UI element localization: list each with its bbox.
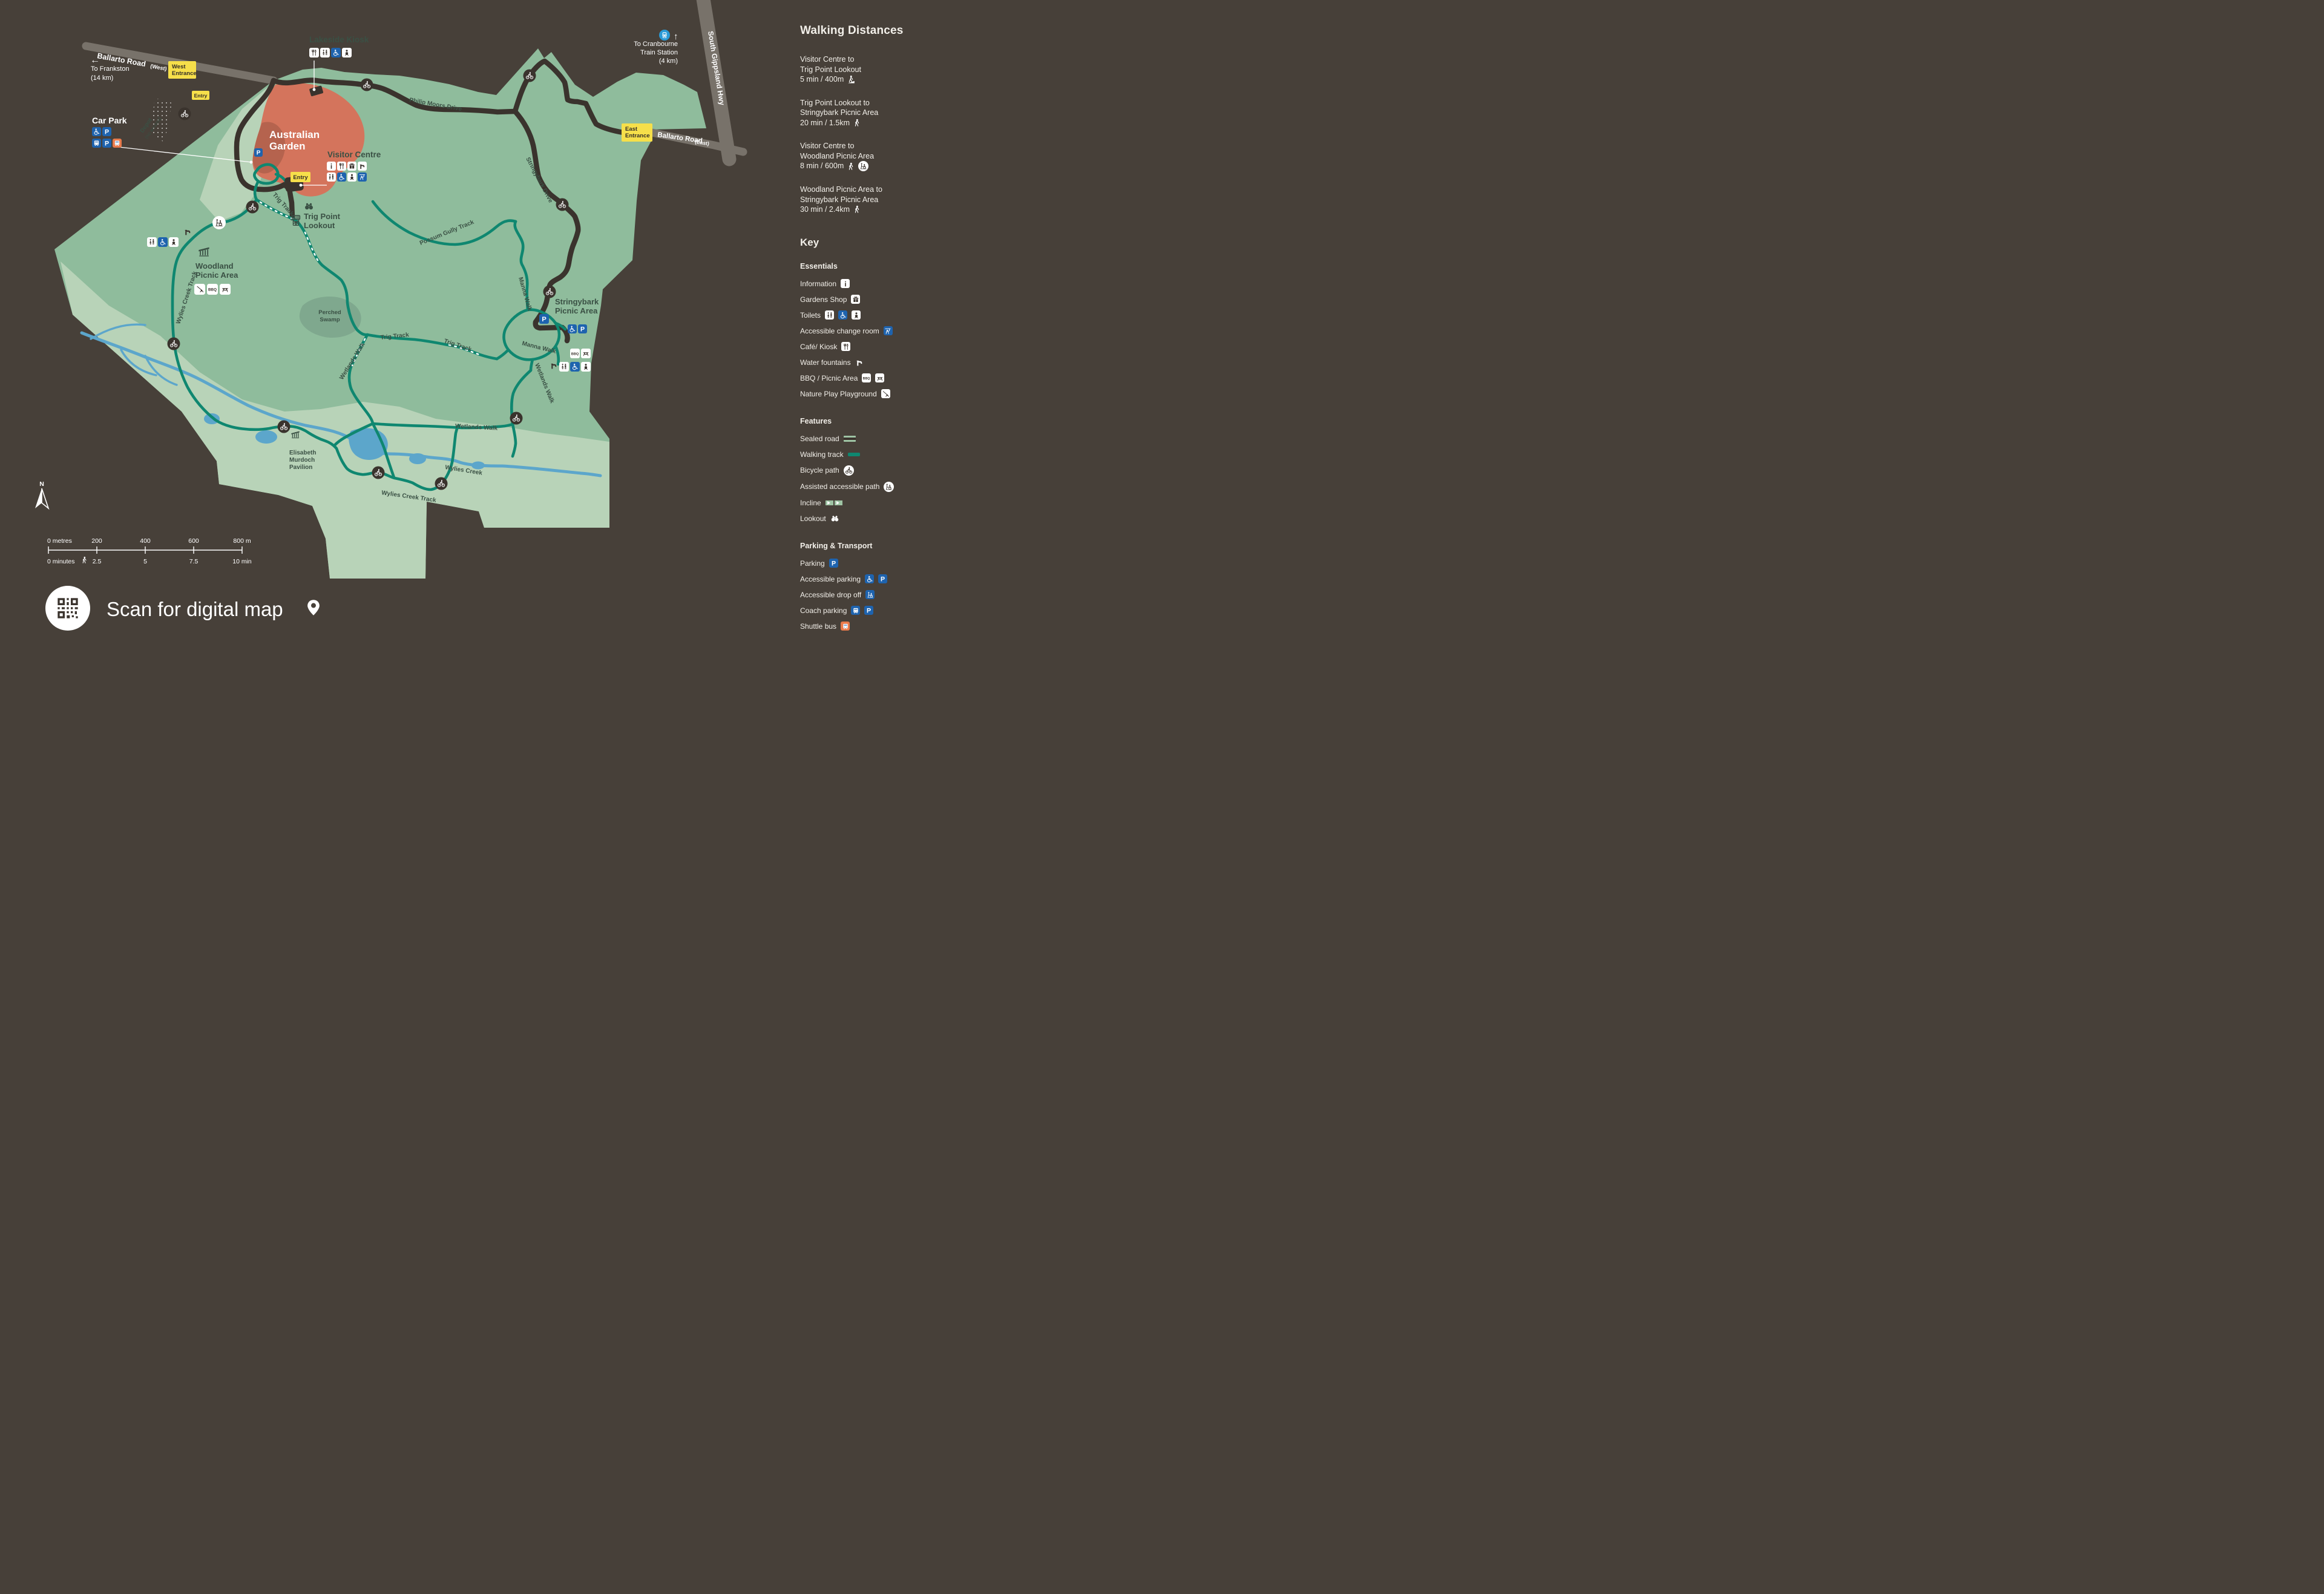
scale-minutes-25: 2.5 bbox=[93, 558, 102, 565]
key-label: Parking bbox=[800, 559, 825, 568]
key-label: Bicycle path bbox=[800, 466, 839, 474]
wd-detail: 30 min / 2.4km bbox=[800, 205, 850, 215]
key-label: Toilets bbox=[800, 311, 821, 320]
to-frankston-label-1: To Frankston bbox=[91, 65, 130, 73]
connector-dot-1 bbox=[250, 161, 253, 164]
key-item-information: Information bbox=[800, 279, 921, 289]
coach-icon bbox=[94, 140, 99, 146]
key-item-accessible-change-room: Accessible change room bbox=[800, 326, 921, 336]
park-map-page: BBQ P bbox=[0, 0, 930, 638]
walker-incline-icon bbox=[847, 75, 856, 84]
information-icon bbox=[331, 163, 332, 169]
assisted-path-marker bbox=[212, 216, 226, 229]
key-label: Accessible change room bbox=[800, 327, 879, 335]
key-item-incline: Incline bbox=[800, 498, 921, 508]
wd-route-line: Stringybark Picnic Area bbox=[800, 108, 921, 118]
key-label: Assisted accessible path bbox=[800, 482, 879, 491]
walking-distance-item: Woodland Picnic Area to Stringybark Picn… bbox=[800, 185, 921, 215]
wd-route-line: Visitor Centre to bbox=[800, 54, 921, 65]
key-item-gardens-shop: Gardens Shop bbox=[800, 295, 921, 304]
scale-bar: 0 metres 200 400 600 800 m 0 minutes 2.5… bbox=[47, 537, 252, 565]
scale-bar-line bbox=[48, 546, 242, 554]
water-fountain-icon bbox=[855, 358, 864, 367]
walking-distance-item: Visitor Centre to Trig Point Lookout 5 m… bbox=[800, 54, 921, 85]
key-item-lookout: Lookout bbox=[800, 514, 921, 523]
scale-metres-600: 600 bbox=[188, 537, 199, 545]
key-item-coach-parking: Coach parking bbox=[800, 606, 921, 615]
wd-route-line: Woodland Picnic Area bbox=[800, 151, 921, 162]
compass-needle-left bbox=[35, 488, 42, 508]
key-item-shuttle-bus: Shuttle bus bbox=[800, 622, 921, 631]
australian-garden-label-1: Australian bbox=[269, 129, 320, 140]
to-cranbourne-label-1: To Cranbourne bbox=[634, 41, 678, 48]
key-section-features: Features Sealed road Walking track Bicyc… bbox=[800, 417, 921, 523]
scale-minutes-75: 7.5 bbox=[189, 558, 199, 565]
baby-change-icon bbox=[852, 310, 861, 320]
key-label: Sealed road bbox=[800, 435, 839, 443]
stringybark-picnic-label-2: Picnic Area bbox=[555, 306, 598, 315]
scale-minutes-10: 10 min bbox=[232, 558, 252, 565]
key-label: Nature Play Playground bbox=[800, 390, 877, 398]
key-label: Information bbox=[800, 280, 836, 288]
scan-footer: Scan for digital map bbox=[45, 586, 320, 631]
accessible-icon bbox=[865, 574, 874, 583]
wd-route-line: Stringybark Picnic Area bbox=[800, 195, 921, 205]
wd-route-line: Woodland Picnic Area to bbox=[800, 185, 921, 195]
key-item-cafe-kiosk: Café/ Kiosk bbox=[800, 342, 921, 352]
key-label: Gardens Shop bbox=[800, 295, 847, 304]
shuttle-bus-icon bbox=[115, 140, 119, 146]
toilets-icon bbox=[825, 310, 834, 320]
shuttle-bus-icon bbox=[841, 622, 850, 631]
scale-minutes-5: 5 bbox=[143, 558, 147, 565]
walking-track-swatch bbox=[848, 453, 860, 456]
parking-icon bbox=[580, 326, 585, 333]
wd-route-line: Trig Point Lookout to bbox=[800, 98, 921, 108]
key-label: BBQ / Picnic Area bbox=[800, 374, 858, 382]
key-item-water-fountains: Water fountains bbox=[800, 358, 921, 367]
key-label: Walking track bbox=[800, 450, 844, 459]
trig-point-label-1: Trig Point bbox=[304, 212, 341, 221]
key-item-nature-play: Nature Play Playground bbox=[800, 389, 921, 399]
key-item-bicycle-path: Bicycle path bbox=[800, 465, 921, 476]
key-item-accessible-parking: Accessible parking bbox=[800, 574, 921, 584]
key-item-walking-track: Walking track bbox=[800, 450, 921, 459]
to-frankston-label-2: (14 km) bbox=[91, 74, 113, 82]
murdoch-pavilion-label-1: Elisabeth bbox=[289, 450, 316, 456]
parking-icon bbox=[878, 574, 887, 583]
walking-distance-item: Visitor Centre to Woodland Picnic Area 8… bbox=[800, 141, 921, 171]
parking-icon bbox=[105, 128, 109, 136]
bbq-icon bbox=[862, 373, 871, 382]
car-park-icons bbox=[92, 127, 122, 148]
bicycle-path-icon bbox=[844, 465, 854, 476]
picnic-table-icon bbox=[875, 373, 884, 382]
nature-play-icon bbox=[881, 389, 890, 398]
parking-icon bbox=[542, 316, 547, 323]
key-label: Café/ Kiosk bbox=[800, 343, 837, 351]
accessible-drop-off-icon bbox=[865, 590, 875, 599]
entry-label-north: Entry bbox=[192, 91, 209, 100]
connector-dot-3 bbox=[300, 184, 303, 187]
parking-icon bbox=[864, 606, 873, 615]
visitor-centre-label: Visitor Centre bbox=[327, 150, 381, 159]
key-section-parking-transport: Parking & Transport Parking Accessible p… bbox=[800, 542, 921, 631]
key-item-parking: Parking bbox=[800, 559, 921, 568]
walking-distances-title: Walking Distances bbox=[800, 24, 921, 38]
murdoch-pavilion-label-3: Pavilion bbox=[289, 464, 312, 471]
perched-swamp-label-1: Perched bbox=[318, 309, 341, 316]
walker-icon bbox=[853, 205, 861, 214]
key-label: Lookout bbox=[800, 514, 826, 523]
key-label: Water fountains bbox=[800, 358, 851, 367]
parking-icon bbox=[829, 559, 838, 568]
scale-metres-200: 200 bbox=[91, 537, 102, 545]
to-cranbourne-label-3: (4 km) bbox=[659, 57, 678, 65]
cafe-icon bbox=[841, 342, 850, 351]
scan-text: Scan for digital map bbox=[107, 598, 283, 620]
svg-text:Entry: Entry bbox=[194, 93, 208, 99]
coach-icon bbox=[851, 606, 860, 615]
bbq-icon bbox=[571, 352, 579, 356]
train-station-marker bbox=[659, 30, 670, 41]
key-label: Coach parking bbox=[800, 606, 847, 615]
key-item-bbq-picnic: BBQ / Picnic Area bbox=[800, 373, 921, 383]
key-section-heading: Parking & Transport bbox=[800, 542, 921, 550]
stringybark-picnic-label-1: Stringybark bbox=[555, 297, 599, 306]
trig-point-label-2: Lookout bbox=[304, 221, 335, 230]
key-item-toilets: Toilets bbox=[800, 310, 921, 320]
wd-detail: 8 min / 600m bbox=[800, 161, 844, 171]
to-cranbourne-label-2: Train Station bbox=[640, 49, 678, 56]
connector-dot-2 bbox=[313, 88, 316, 91]
sealed-road-swatch bbox=[844, 436, 856, 442]
walker-icon bbox=[847, 162, 855, 171]
perched-swamp-label-2: Swamp bbox=[320, 317, 340, 323]
accessible-change-room-icon bbox=[884, 326, 893, 335]
australian-garden-label-2: Garden bbox=[269, 140, 306, 152]
info-panel: Walking Distances Visitor Centre to Trig… bbox=[800, 24, 921, 638]
car-park-label: Car Park bbox=[92, 116, 127, 125]
key-item-accessible-drop-off: Accessible drop off bbox=[800, 590, 921, 600]
key-title: Key bbox=[800, 237, 921, 249]
key-section-heading: Features bbox=[800, 417, 921, 425]
wd-route-line: Trig Point Lookout bbox=[800, 65, 921, 75]
walking-distance-item: Trig Point Lookout to Stringybark Picnic… bbox=[800, 98, 921, 128]
svg-text:Entrance: Entrance bbox=[172, 70, 197, 77]
key-item-assisted-path: Assisted accessible path bbox=[800, 482, 921, 492]
scale-metres-800: 800 m bbox=[233, 537, 251, 545]
garden-parking-icon bbox=[254, 148, 263, 157]
east-entrance-label: East Entrance bbox=[622, 123, 652, 142]
key-label: Shuttle bus bbox=[800, 622, 836, 631]
walker-icon bbox=[853, 119, 861, 127]
wd-detail: 20 min / 1.5km bbox=[800, 118, 850, 128]
key-section-heading: Essentials bbox=[800, 262, 921, 271]
svg-text:West: West bbox=[172, 64, 186, 70]
scale-metres-400: 400 bbox=[140, 537, 151, 545]
compass: N bbox=[35, 480, 48, 508]
information-icon bbox=[841, 279, 850, 288]
scale-metres-0: 0 metres bbox=[47, 537, 72, 545]
parking-icon bbox=[105, 140, 109, 147]
woodland-picnic-label-1: Woodland bbox=[195, 261, 234, 271]
accessible-toilet-icon bbox=[838, 310, 847, 320]
location-pin-icon bbox=[307, 600, 320, 615]
woodland-picnic-label-2: Picnic Area bbox=[195, 271, 238, 280]
entry-label-south: Entry bbox=[290, 172, 310, 182]
park-map: BBQ P bbox=[0, 0, 930, 638]
svg-text:Entrance: Entrance bbox=[625, 133, 650, 139]
incline-swatch bbox=[826, 500, 842, 505]
key-label: Accessible parking bbox=[800, 575, 861, 583]
scale-minutes-0: 0 minutes bbox=[47, 558, 75, 565]
scale-walker-icon bbox=[83, 557, 86, 563]
lakeside-kiosk-label: Lakeside Kiosk bbox=[309, 35, 369, 44]
compass-needle-right bbox=[42, 488, 48, 508]
key-item-sealed-road: Sealed road bbox=[800, 434, 921, 444]
svg-text:East: East bbox=[625, 126, 638, 133]
gardens-shop-icon bbox=[851, 295, 860, 304]
wd-route-line: Visitor Centre to bbox=[800, 141, 921, 151]
wd-detail: 5 min / 400m bbox=[800, 74, 844, 85]
bbq-icon bbox=[208, 288, 217, 292]
key-section-essentials: Essentials Information Gardens Shop Toil… bbox=[800, 262, 921, 399]
west-entrance-label: West Entrance bbox=[168, 61, 197, 79]
svg-text:Entry: Entry bbox=[293, 174, 308, 181]
compass-north-label: N bbox=[39, 480, 44, 488]
murdoch-pavilion-label-2: Murdoch bbox=[289, 457, 315, 464]
key-label: Incline bbox=[800, 499, 821, 507]
assisted-path-icon bbox=[858, 161, 868, 171]
assisted-path-icon bbox=[884, 482, 894, 492]
key-label: Accessible drop off bbox=[800, 591, 861, 599]
lakeside-kiosk-icons bbox=[309, 48, 352, 57]
lookout-binoculars-icon bbox=[830, 514, 839, 523]
